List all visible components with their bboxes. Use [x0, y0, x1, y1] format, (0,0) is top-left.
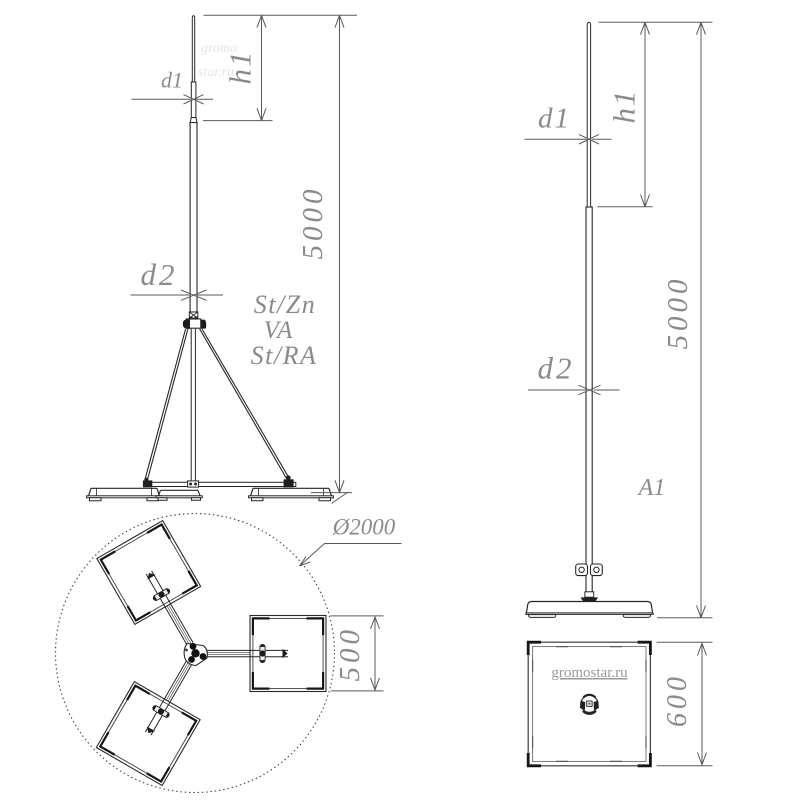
svg-text:St/RA: St/RA — [251, 341, 318, 370]
svg-text:A1: A1 — [637, 475, 666, 501]
svg-text:5000: 5000 — [297, 186, 329, 260]
svg-text:h1: h1 — [223, 50, 258, 85]
svg-text:gromostar.ru: gromostar.ru — [551, 665, 628, 681]
svg-text:500: 500 — [334, 626, 366, 682]
svg-text:600: 600 — [662, 673, 693, 727]
svg-text:St/Zn: St/Zn — [254, 290, 316, 319]
svg-text:h1: h1 — [607, 89, 642, 124]
svg-text:Ø2000: Ø2000 — [332, 515, 396, 540]
svg-text:VA: VA — [264, 317, 293, 344]
svg-text:d1: d1 — [538, 103, 571, 135]
svg-text:5000: 5000 — [662, 276, 694, 350]
svg-text:d2: d2 — [538, 351, 575, 386]
svg-text:d2: d2 — [141, 257, 178, 292]
svg-text:d1: d1 — [161, 68, 183, 93]
